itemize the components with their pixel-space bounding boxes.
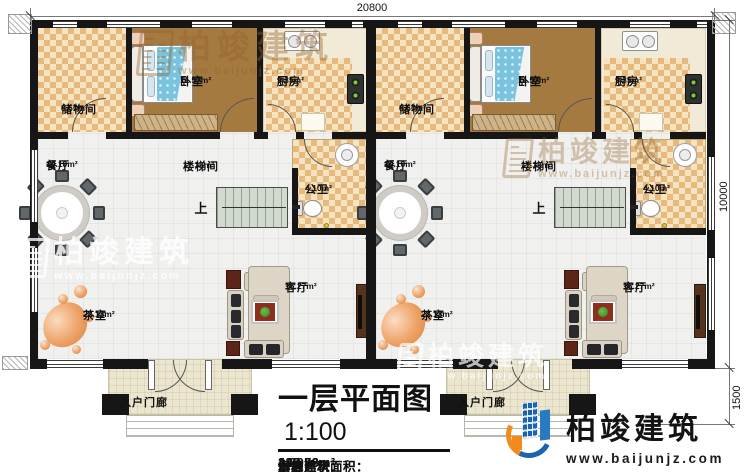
side-table-icon — [226, 341, 240, 356]
plan-title: 一层平面图 — [278, 374, 433, 418]
window — [47, 360, 103, 368]
bed-icon — [131, 45, 193, 103]
stairs-direction-line — [222, 207, 286, 208]
brand-logo: 柏竣建筑 www.baijunjz.com — [504, 398, 750, 468]
wall-bottom — [453, 359, 498, 369]
wall — [332, 132, 368, 139]
wall — [595, 28, 601, 132]
dimension-line-top — [30, 16, 715, 17]
stairs-direction-dash — [292, 205, 300, 209]
wardrobe-icon — [134, 114, 218, 131]
kitchen-island-icon — [301, 113, 325, 131]
wall — [292, 228, 368, 235]
window — [708, 258, 715, 330]
unit: 上 — [38, 28, 368, 359]
dining-table-icon — [373, 186, 427, 240]
plan-scale: 1:100 — [284, 418, 347, 447]
tv-icon — [696, 295, 700, 329]
tea-pebble-icon — [40, 340, 50, 350]
wall — [592, 132, 606, 139]
door-leaf-icon — [205, 360, 212, 390]
window — [708, 157, 715, 230]
chaise-icon — [582, 340, 622, 358]
chair-icon — [55, 244, 69, 256]
wall — [630, 168, 636, 235]
wall — [670, 132, 706, 139]
wall — [464, 28, 470, 132]
window — [397, 360, 453, 368]
chair-icon — [431, 206, 443, 220]
window — [398, 21, 422, 28]
hatch-pad — [8, 14, 32, 34]
nightstand-icon — [130, 32, 145, 45]
wall — [292, 168, 298, 235]
wall — [254, 132, 268, 139]
tea-pebble-icon — [412, 285, 425, 298]
wall-bottom — [103, 359, 148, 369]
title-block: 一层平面图1:100 本层建筑面积：222.88m² 本栋建筑面积：445.76… — [278, 374, 493, 456]
kitchen-island-icon — [639, 113, 663, 131]
window — [272, 360, 340, 368]
window — [630, 21, 670, 28]
sofa-icon — [565, 290, 582, 340]
stove-icon — [347, 74, 364, 104]
porch-column — [231, 394, 258, 415]
window — [31, 248, 38, 312]
window — [107, 21, 160, 28]
stove-icon — [685, 74, 702, 104]
tv-stand-icon — [694, 284, 706, 338]
sofa-icon — [227, 290, 244, 340]
window — [537, 21, 577, 28]
coffee-table-icon — [589, 300, 617, 324]
chaise-icon — [244, 340, 284, 358]
side-table-icon — [564, 270, 579, 289]
wall-bottom — [688, 359, 715, 369]
kitchen-sink-icon — [284, 31, 320, 51]
door-leaf-icon — [148, 360, 155, 390]
wall-party — [366, 20, 376, 369]
hatch-pad — [2, 356, 28, 370]
nightstand-icon — [468, 32, 483, 45]
dimension-label-top: 20800 — [337, 2, 407, 14]
wall — [444, 132, 558, 139]
toilet-icon — [295, 200, 322, 217]
chair-icon — [393, 244, 407, 256]
wall-bottom — [30, 359, 47, 369]
tea-pebble-icon — [74, 285, 87, 298]
kitchen-sink-icon — [622, 31, 658, 51]
unit: 上 — [376, 28, 706, 359]
wall-bottom — [340, 359, 376, 369]
window — [352, 21, 363, 28]
wall — [296, 132, 304, 139]
window — [192, 21, 232, 28]
window — [622, 360, 688, 368]
stairs-up-label: 上 — [192, 198, 210, 217]
wall — [106, 132, 220, 139]
tea-pebble-icon — [378, 340, 388, 350]
brand-url: www.baijunjz.com — [566, 451, 750, 466]
door-leaf-icon — [543, 360, 550, 390]
plant-icon — [260, 307, 270, 317]
brand-name: 柏竣建筑 — [566, 404, 750, 448]
wall — [38, 132, 68, 139]
floor-plan-canvas: 上 — [0, 0, 750, 472]
side-table-icon — [564, 341, 578, 356]
tv-icon — [358, 295, 362, 329]
logo-glyph-icon — [504, 398, 562, 462]
tea-pebble-icon — [396, 294, 406, 304]
wall-bottom — [376, 359, 397, 369]
title-rule — [278, 449, 450, 452]
wardrobe-icon — [472, 114, 556, 131]
toilet-icon — [633, 200, 660, 217]
window — [53, 21, 77, 28]
bathroom-sink-icon — [673, 143, 697, 167]
bed-icon — [469, 45, 531, 103]
plant-icon — [598, 307, 608, 317]
wall-bottom — [222, 359, 272, 369]
wall — [126, 28, 132, 132]
wall-bottom — [572, 359, 622, 369]
dining-table-icon — [35, 186, 89, 240]
tea-pebble-icon — [72, 345, 81, 354]
porch-steps-icon — [126, 415, 234, 437]
bathroom-sink-icon — [335, 143, 359, 167]
window — [285, 21, 325, 28]
window — [452, 21, 505, 28]
tea-pebble-icon — [410, 345, 419, 354]
wall — [257, 28, 263, 132]
chair-icon — [93, 206, 105, 220]
stairs-direction-dash — [630, 205, 638, 209]
stairs-up-label: 上 — [530, 198, 548, 217]
window — [697, 21, 707, 28]
wall — [630, 228, 706, 235]
dimension-label-right: 10000 — [718, 160, 732, 234]
stairs-direction-line — [560, 207, 624, 208]
coffee-table-icon — [251, 300, 279, 324]
tea-pebble-icon — [58, 294, 68, 304]
wall — [634, 132, 642, 139]
wall — [376, 132, 406, 139]
window — [31, 150, 38, 222]
side-table-icon — [226, 270, 241, 289]
